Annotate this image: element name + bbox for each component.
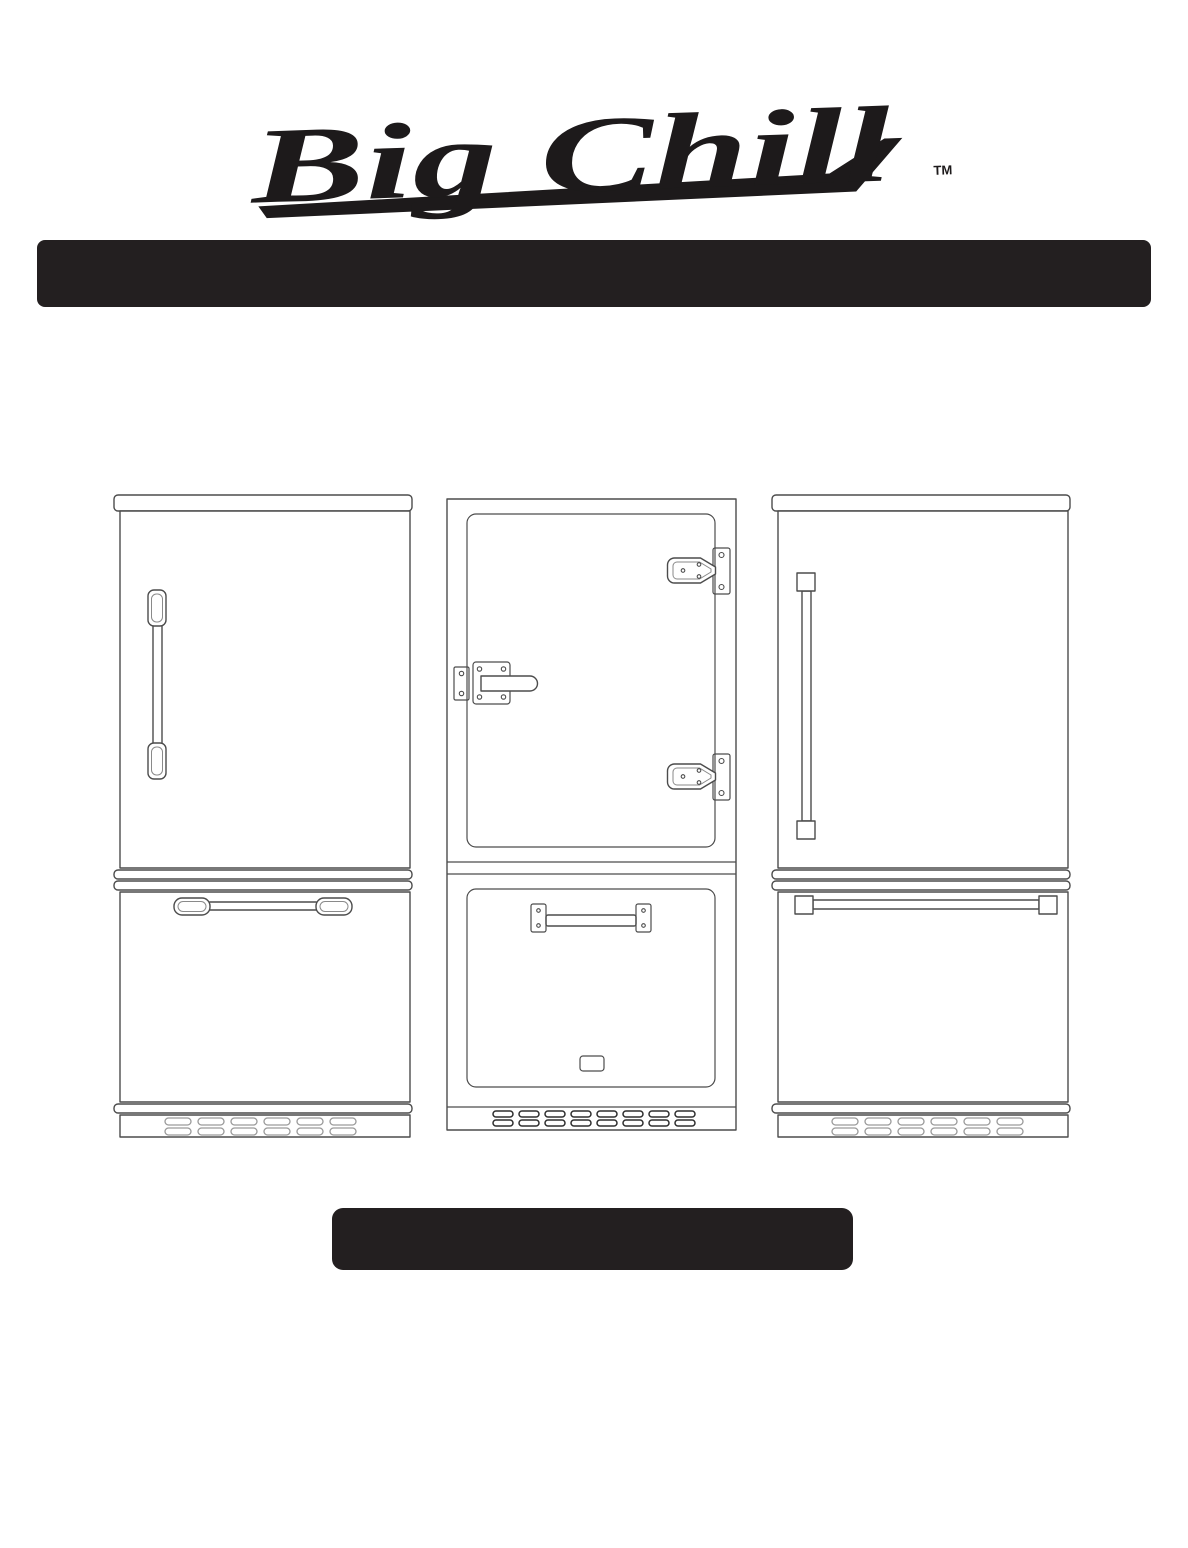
divider-band: [114, 881, 412, 890]
illustration-right-fridge: [770, 493, 1072, 1138]
big-chill-logo-icon: Big Chill TM: [240, 96, 960, 226]
freezer-drawer: [120, 892, 410, 1102]
bottom-freezer-fridge-retro-chrome-handles-icon: [112, 493, 414, 1138]
bottom-freezer-fridge-original-latch-and-hinges-icon: [445, 496, 738, 1134]
base-band: [772, 1104, 1070, 1113]
logo-trademark: TM: [933, 162, 952, 178]
illustration-left-fridge: [112, 493, 414, 1138]
footer-banner: [332, 1208, 853, 1270]
fridge-cabinet: [114, 495, 412, 1137]
base-band: [114, 1104, 412, 1113]
freezer-drawer: [778, 892, 1068, 1102]
illustration-middle-fridge: [445, 496, 738, 1134]
logo-text: Big Chill: [247, 96, 892, 226]
divider-band: [772, 870, 1070, 879]
big-chill-logo: Big Chill TM: [240, 96, 960, 226]
fridge-cabinet: [447, 499, 736, 1130]
latch-lever: [481, 676, 538, 691]
fridge-cabinet: [772, 495, 1070, 1137]
title-banner: [37, 240, 1151, 307]
top-cap-band: [114, 495, 412, 511]
cabinet-box: [447, 499, 736, 1130]
fridge-door: [120, 511, 410, 868]
bottom-freezer-fridge-pro-bar-handles-icon: [770, 493, 1072, 1138]
manual-cover-page: Big Chill TM: [0, 0, 1188, 1548]
top-cap-band: [772, 495, 1070, 511]
divider-band: [114, 870, 412, 879]
fridge-door: [778, 511, 1068, 868]
divider-band: [772, 881, 1070, 890]
